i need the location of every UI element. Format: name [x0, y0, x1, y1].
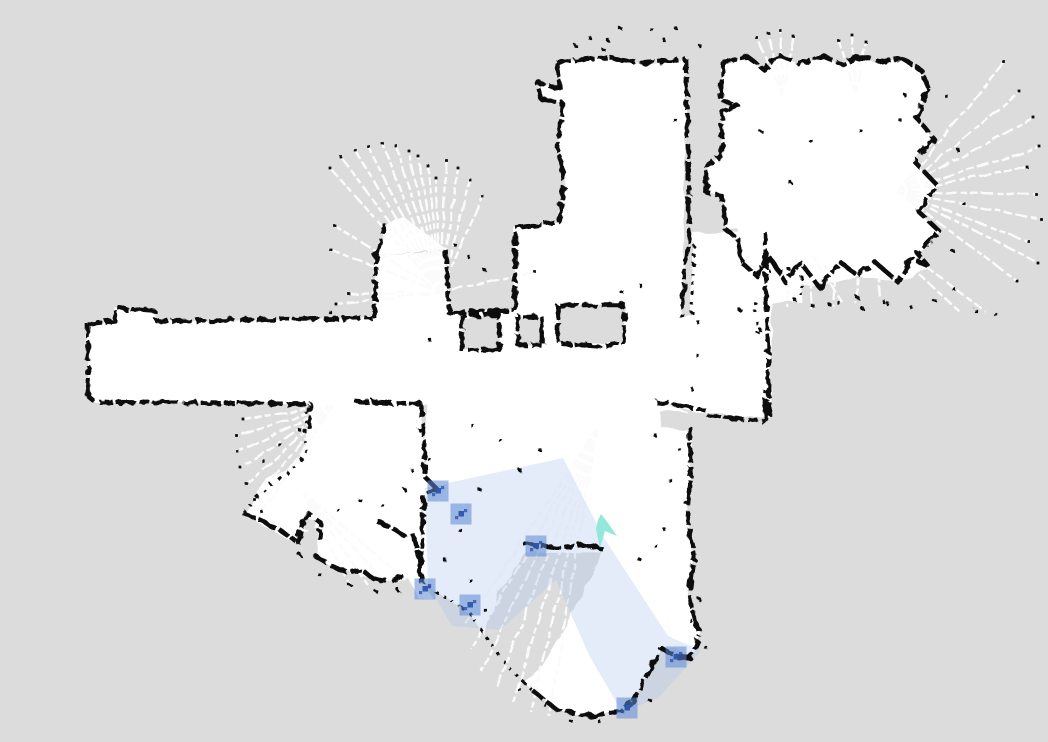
speckle-dot — [674, 26, 677, 29]
speckle-dot — [278, 443, 281, 446]
landmark-hit-dot — [534, 543, 540, 549]
speckle-dot — [953, 288, 956, 291]
speckle-dot — [858, 128, 861, 131]
speckle-dot — [963, 203, 966, 206]
speckle-dot — [856, 296, 859, 299]
speckle-dot — [620, 290, 623, 293]
scan-hit-dot — [333, 224, 336, 227]
speckle-dot — [403, 488, 406, 491]
speckle-dot — [704, 646, 707, 649]
landmark-hit-dot — [428, 584, 431, 587]
scan-hit-dot — [240, 467, 243, 470]
speckle-dot — [932, 298, 935, 301]
scan-hit-dot — [1019, 91, 1022, 94]
speckle-dot — [336, 508, 339, 511]
speckle-dot — [758, 328, 761, 331]
landmark-hit-dot — [455, 516, 458, 519]
tooth-notch-2 — [518, 317, 542, 345]
speckle-dot — [808, 138, 811, 141]
scan-hit-dot — [767, 32, 770, 35]
speckle-dot — [910, 306, 913, 309]
speckle-dot — [348, 583, 351, 586]
speckle-dot — [260, 458, 263, 461]
speckle-dot — [558, 118, 561, 121]
landmark-hit-dot — [464, 509, 467, 512]
speckle-dot — [468, 256, 471, 259]
speckle-dot — [618, 26, 621, 29]
landmark-hit-dot — [530, 548, 533, 551]
speckle-dot — [606, 38, 609, 41]
speckle-dot — [298, 428, 301, 431]
speckle-dot — [298, 316, 301, 319]
landmark-hit-dot — [674, 654, 680, 660]
scan-hit-dot — [367, 145, 370, 148]
scan-hit-dot — [792, 35, 795, 38]
landmark-hit-dot — [468, 602, 474, 608]
landmark-marker — [460, 595, 481, 616]
speckle-dot — [882, 300, 885, 303]
landmark-marker — [617, 698, 638, 719]
landmark-hit-dot — [419, 591, 422, 594]
landmark-hit-dot — [459, 511, 465, 517]
speckle-dot — [688, 618, 691, 621]
scan-hit-dot — [348, 293, 351, 296]
scan-hit-dot — [261, 511, 264, 514]
speckle-dot — [543, 703, 546, 706]
tooth-notch-1 — [462, 316, 500, 350]
occupancy-grid-map — [0, 0, 1048, 742]
speckle-dot — [788, 180, 791, 183]
scan-hit-dot — [381, 142, 384, 145]
speckle-dot — [696, 320, 699, 323]
speckle-dot — [518, 688, 521, 691]
speckle-dot — [428, 458, 431, 461]
landmark-hit-dot — [625, 705, 631, 711]
speckle-dot — [973, 308, 976, 311]
speckle-dot — [758, 128, 761, 131]
landmark-marker — [526, 536, 547, 557]
speckle-dot — [994, 313, 997, 316]
scan-hit-dot — [851, 34, 854, 37]
scan-hit-dot — [253, 498, 256, 501]
speckle-dot — [698, 44, 701, 47]
speckle-dot — [653, 433, 656, 436]
speckle-dot — [418, 428, 421, 431]
scan-hit-dot — [779, 29, 782, 32]
scan-hit-dot — [1039, 146, 1042, 149]
scan-hit-dot — [407, 149, 410, 152]
speckle-dot — [478, 488, 481, 491]
scan-hit-dot — [1036, 261, 1039, 264]
speckle-dot — [468, 578, 471, 581]
landmark-hit-dot — [630, 703, 633, 706]
speckle-dot — [453, 243, 456, 246]
speckle-dot — [828, 303, 831, 306]
speckle-dot — [568, 718, 571, 721]
speckle-dot — [483, 608, 486, 611]
scan-hit-dot — [335, 303, 338, 306]
speckle-dot — [638, 558, 641, 561]
scan-hit-dot — [837, 39, 840, 42]
speckle-dot — [318, 573, 321, 576]
speckle-dot — [598, 720, 601, 723]
speckle-dot — [602, 48, 605, 51]
speckle-dot — [380, 503, 383, 506]
speckle-dot — [518, 468, 521, 471]
speckle-dot — [898, 118, 901, 121]
speckle-dot — [691, 388, 694, 391]
scan-hit-dot — [865, 41, 868, 44]
scan-hit-dot — [1016, 280, 1019, 283]
landmark-hit-dot — [473, 600, 476, 603]
scan-hit-dot — [1003, 61, 1006, 64]
speckle-dot — [373, 588, 376, 591]
speckle-dot — [458, 528, 461, 531]
speckle-dot — [688, 178, 691, 181]
landmark-marker — [451, 504, 472, 525]
landmark-hit-dot — [621, 710, 624, 713]
speckle-dot — [695, 353, 698, 356]
scan-hit-dot — [330, 249, 333, 252]
speckle-dot — [443, 558, 446, 561]
speckle-dot — [793, 298, 796, 301]
scan-hit-dot — [534, 271, 537, 274]
scan-hit-dot — [435, 177, 438, 180]
scan-hit-dot — [1028, 241, 1031, 244]
speckle-dot — [673, 118, 676, 121]
scan-hit-dot — [246, 483, 249, 486]
speckle-dot — [678, 448, 681, 451]
landmark-hit-dot — [539, 541, 542, 544]
speckle-dot — [638, 283, 641, 286]
landmark-marker — [666, 647, 687, 668]
scan-hit-dot — [1035, 193, 1038, 196]
scan-hit-dot — [445, 159, 448, 162]
speckle-dot — [943, 93, 946, 96]
speckle-dot — [663, 528, 666, 531]
scan-hit-dot — [329, 167, 332, 170]
speckle-dot — [903, 93, 906, 96]
landmark-hit-dot — [679, 652, 682, 655]
speckle-dot — [650, 28, 653, 31]
scan-hit-dot — [417, 155, 420, 158]
speckle-dot — [886, 302, 889, 305]
speckle-dot — [950, 248, 953, 251]
speckle-dot — [668, 478, 671, 481]
speckle-dot — [483, 268, 486, 271]
scan-hit-dot — [341, 157, 344, 160]
speckle-dot — [428, 338, 431, 341]
speckle-dot — [396, 588, 399, 591]
speckle-dot — [648, 698, 651, 701]
scan-hit-dot — [1032, 116, 1035, 119]
scan-hit-dot — [427, 165, 430, 168]
scan-hit-dot — [236, 435, 239, 438]
speckle-dot — [810, 303, 813, 306]
speckle-dot — [836, 300, 839, 303]
landmark-hit-dot — [436, 488, 442, 494]
speckle-dot — [573, 43, 576, 46]
speckle-dot — [410, 468, 413, 471]
scan-hit-dot — [457, 167, 460, 170]
landmark-hit-dot — [441, 486, 444, 489]
speckle-dot — [328, 310, 331, 313]
landmark-hit-dot — [423, 586, 429, 592]
scan-hit-dot — [481, 195, 484, 198]
speckle-dot — [956, 148, 959, 151]
scan-hit-dot — [237, 451, 240, 454]
speckle-dot — [653, 543, 656, 546]
scan-hit-dot — [1040, 218, 1043, 221]
speckle-dot — [298, 553, 301, 556]
speckle-dot — [498, 438, 501, 441]
landmark-hit-dot — [432, 493, 435, 496]
speckle-dot — [738, 308, 741, 311]
scan-hit-dot — [756, 37, 759, 40]
speckle-dot — [860, 306, 863, 309]
landmark-hit-dot — [670, 659, 673, 662]
scan-hit-dot — [242, 418, 245, 421]
tooth-notch-3 — [558, 304, 625, 343]
scan-hit-dot — [395, 145, 398, 148]
scan-hit-dot — [469, 179, 472, 182]
slam-map-view[interactable] — [0, 0, 1048, 742]
landmark-marker — [415, 579, 436, 600]
landmark-hit-dot — [464, 607, 467, 610]
speckle-dot — [470, 423, 473, 426]
scan-hit-dot — [1026, 166, 1029, 169]
speckle-dot — [662, 38, 665, 41]
landmark-marker — [428, 481, 449, 502]
speckle-dot — [358, 498, 361, 501]
scan-hit-dot — [354, 149, 357, 152]
speckle-dot — [538, 448, 541, 451]
speckle-dot — [588, 36, 591, 39]
speckle-dot — [698, 598, 701, 601]
